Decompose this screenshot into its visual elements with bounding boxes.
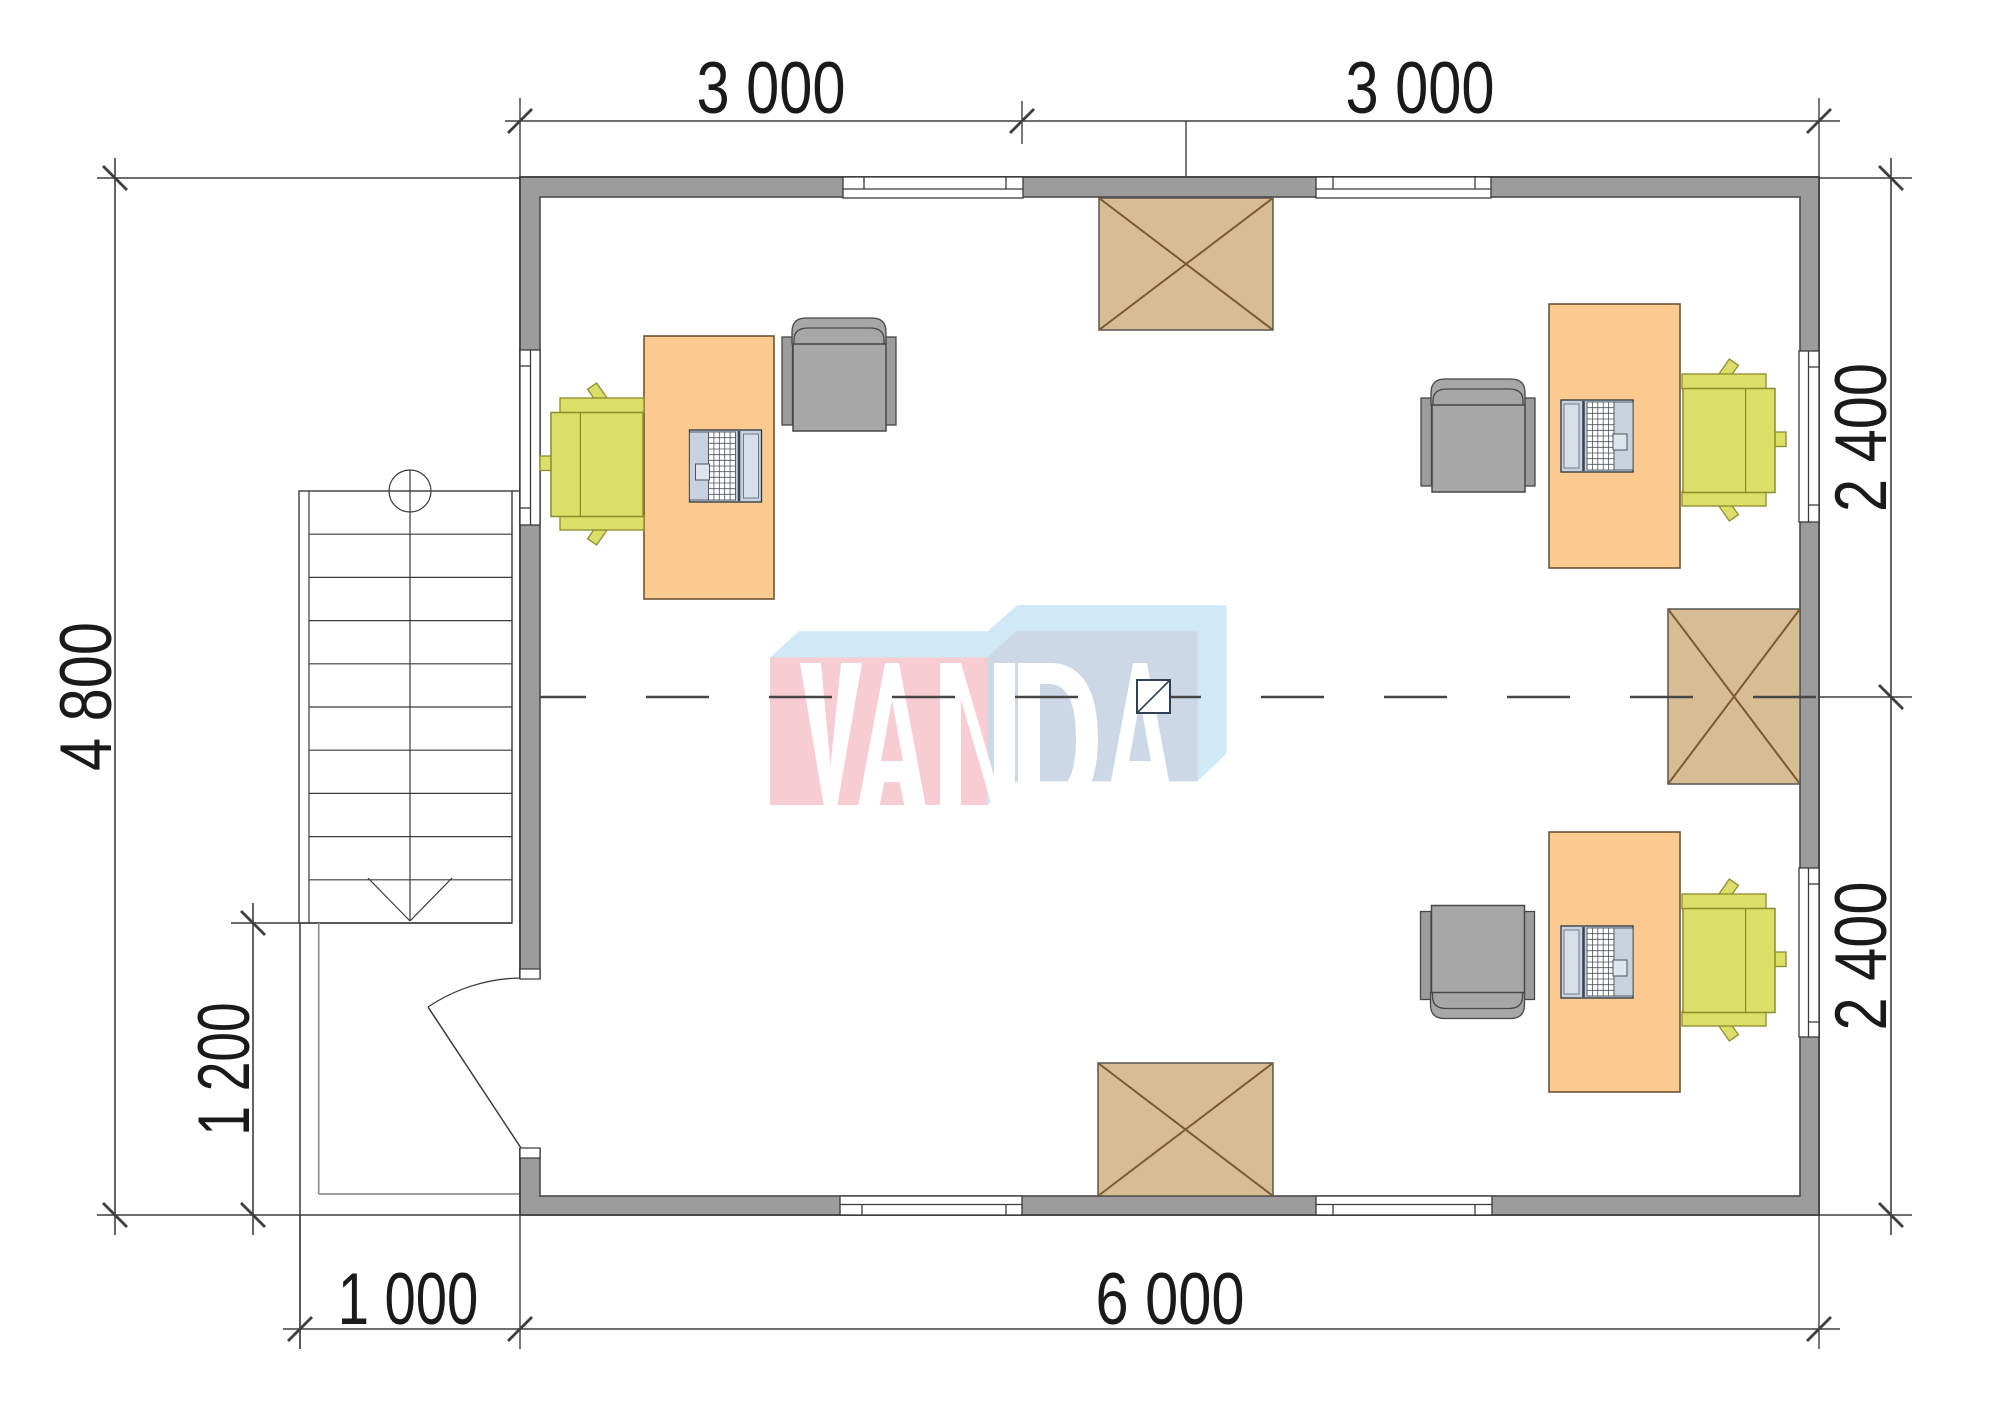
svg-text:3 000: 3 000 bbox=[1345, 48, 1494, 129]
svg-text:3 000: 3 000 bbox=[696, 48, 845, 129]
svg-text:1 000: 1 000 bbox=[338, 1258, 479, 1340]
svg-text:6 000: 6 000 bbox=[1095, 1259, 1244, 1340]
svg-text:2 400: 2 400 bbox=[1821, 363, 1902, 512]
svg-text:4 800: 4 800 bbox=[46, 622, 127, 771]
svg-text:2 400: 2 400 bbox=[1821, 881, 1902, 1030]
svg-text:1 200: 1 200 bbox=[183, 1002, 265, 1135]
